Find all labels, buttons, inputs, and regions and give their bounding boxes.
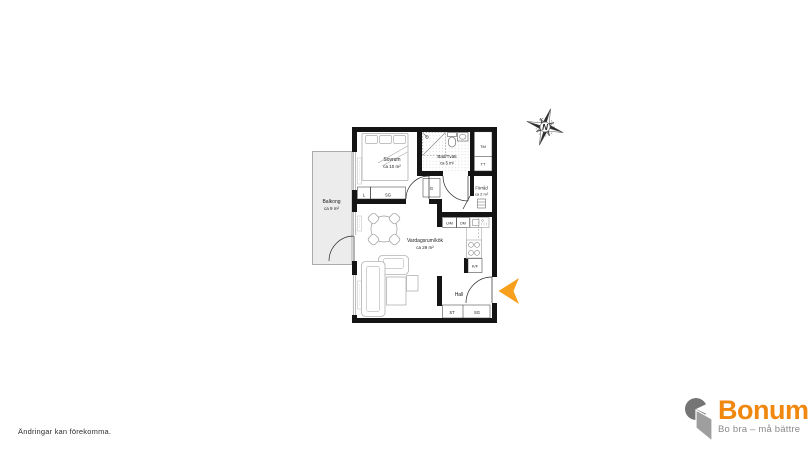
room-area-forrad: ca 2 m² [475,192,489,197]
room-area-vardagsrum: ca 29 m² [416,245,434,250]
logo-text: Bonum Bo bra – må bättre [718,396,808,435]
balcony: Balkong ca 9 m² [313,152,353,265]
wall-segment [437,204,442,227]
door-leaf-storage [463,196,470,209]
wall-segment [417,171,443,176]
room-area-bad: ca 5 m² [440,161,455,166]
bonum-logo-icon [683,396,716,442]
wall-segment [492,303,497,323]
door-arc-bathroom [443,176,468,201]
coffee-table [387,277,407,305]
compass-icon: N [521,103,568,150]
room-label-bad: Bad/Tvätt [437,154,457,159]
pillow [366,136,378,144]
washbasin [458,133,469,142]
wall-segment [464,258,468,273]
toilet-tank [448,133,457,137]
room-label-sovrum: Sovrum [383,157,400,163]
window-sill-tag [358,158,362,184]
fixture-label-kf: K/F [472,264,479,269]
wall-segment [437,276,442,306]
wall-segment [468,171,497,176]
disclaimer-text: Ändringar kan förekomma. [18,427,111,436]
pillow [394,136,406,144]
room-area-sovrum: ca 10 m² [383,164,401,169]
fixture-label-um: U/M [446,222,453,226]
wall-segment [352,127,357,152]
bonum-logo: Bonum Bo bra – må bättre [683,396,810,444]
door-arc-bedroom [406,176,429,199]
room-label-hall: Hall [455,292,464,298]
wall-segment [352,315,357,323]
side-table [407,276,419,292]
wall-segment [429,199,442,204]
fixture-label-sg-hall: SG [474,310,480,315]
living-room: Vardagsrum/kök ca 29 m² [362,212,444,316]
fixture-label-sg: SG [385,193,391,198]
faucet-icon [482,220,484,222]
fixture-label-tt: TT [481,162,486,167]
door-arc-entrance [466,277,492,303]
compass-north-label: N [542,123,548,132]
toilet-bowl [448,137,456,147]
fixture-label-l: L [363,193,366,198]
wall-segment [468,212,497,217]
sink-counter [470,218,489,228]
floor-plan: Balkong ca 9 m² [0,0,810,455]
room-label-balkong: Balkong [322,199,340,205]
wall-segment [442,212,468,217]
wall-segment [470,176,474,196]
fixture-label-st: ST [449,310,455,315]
windows [353,152,355,315]
wall-segment [352,261,357,275]
fixture-label-dm: DM [460,222,466,226]
wall-segment [417,127,422,176]
window-sill-tag [358,216,362,231]
pillow [380,136,392,144]
wall-segment [352,318,497,323]
bedroom: Sovrum ca 10 m² L SG [358,134,409,200]
wall-segment [470,127,474,171]
sofa [362,262,386,317]
floorplan-page: Balkong ca 9 m² [0,0,810,455]
hall: Hall ST SG [443,292,491,318]
fixture-label-tm: TM [480,144,486,149]
room-area-balkong: ca 9 m² [324,206,340,211]
room-label-vardagsrum: Vardagsrum/kök [407,238,444,244]
fixture-label-g: G [430,186,433,191]
sink-bowl [473,220,480,226]
electrical-cabinet-icon [478,199,486,208]
bathroom: Bad/Tvätt ca 5 m² TM TT [422,132,492,171]
room-label-forrad: Förråd [475,186,488,191]
wall-segment [352,199,406,204]
wall-segment [352,127,497,132]
window-sills [358,158,362,309]
stove [467,240,482,258]
wall-segment [492,127,497,277]
logo-tagline: Bo bra – må bättre [718,424,808,435]
entrance-arrow-icon [499,278,520,304]
logo-wordmark: Bonum [718,396,808,424]
